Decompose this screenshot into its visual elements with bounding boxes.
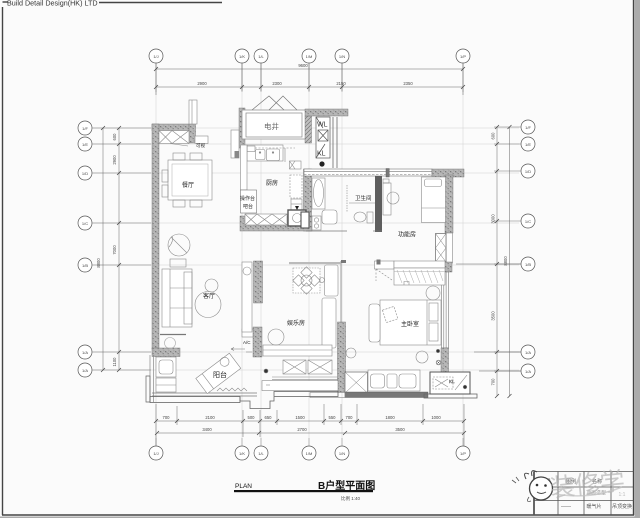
svg-text:KL: KL	[449, 379, 455, 384]
svg-text:3400: 3400	[202, 427, 212, 432]
svg-text:1/D: 1/D	[525, 169, 531, 174]
svg-text:2350: 2350	[403, 81, 413, 86]
svg-text:1/C: 1/C	[82, 221, 88, 226]
svg-text:吧台: 吧台	[243, 203, 253, 210]
svg-text:8800: 8800	[96, 258, 101, 268]
svg-text:3500: 3500	[491, 311, 496, 321]
svg-text:1/C: 1/C	[525, 219, 531, 224]
svg-text:1/D: 1/D	[82, 171, 88, 176]
svg-text:600: 600	[112, 133, 117, 141]
svg-text:7000: 7000	[112, 245, 117, 255]
svg-text:1/F: 1/F	[82, 126, 88, 131]
svg-text:1/J: 1/J	[153, 54, 158, 59]
svg-text:1/E: 1/E	[82, 142, 88, 147]
svg-text:客厅: 客厅	[203, 292, 215, 300]
svg-text:吊顶变换: 吊顶变换	[612, 503, 632, 510]
svg-text:1800: 1800	[385, 415, 395, 420]
svg-text:主卧室: 主卧室	[401, 320, 419, 328]
svg-text:1/A: 1/A	[525, 350, 531, 355]
svg-text:电井: 电井	[264, 121, 279, 131]
svg-text:卫生间: 卫生间	[355, 194, 372, 202]
svg-text:1/M: 1/M	[306, 451, 313, 456]
svg-text:500: 500	[248, 415, 256, 420]
svg-text:1/P: 1/P	[460, 54, 466, 59]
svg-text:——: ——	[561, 504, 571, 510]
svg-text:1/F: 1/F	[525, 125, 531, 130]
svg-text:1/A: 1/A	[525, 369, 531, 374]
svg-text:KL: KL	[317, 151, 326, 158]
svg-text:1/K: 1/K	[239, 54, 245, 59]
svg-text:2900: 2900	[197, 81, 207, 86]
svg-text:暖气片: 暖气片	[586, 503, 601, 510]
svg-text:1/J: 1/J	[153, 451, 158, 456]
svg-text:1/M: 1/M	[306, 54, 313, 59]
svg-text:650: 650	[265, 415, 273, 420]
svg-text:700: 700	[163, 415, 171, 420]
svg-text:PLAN: PLAN	[235, 483, 252, 490]
svg-text:2300: 2300	[272, 81, 282, 86]
svg-text:1/B: 1/B	[82, 263, 88, 268]
svg-text:WL: WL	[317, 122, 328, 129]
svg-text:1/P: 1/P	[460, 451, 466, 456]
svg-text:2900: 2900	[112, 155, 117, 165]
svg-text:1/N: 1/N	[339, 54, 345, 59]
svg-text:1500: 1500	[295, 415, 305, 420]
svg-text:1/L: 1/L	[258, 451, 264, 456]
svg-text:餐厅: 餐厅	[182, 181, 194, 189]
svg-text:700: 700	[346, 415, 354, 420]
svg-text:9600: 9600	[298, 63, 308, 68]
svg-text:娱乐房: 娱乐房	[287, 319, 305, 327]
svg-text:操作台: 操作台	[240, 195, 255, 202]
svg-text:可视: 可视	[196, 142, 205, 149]
svg-text:阳台: 阳台	[213, 370, 227, 379]
svg-text:700: 700	[491, 378, 496, 386]
svg-text:功能房: 功能房	[398, 231, 416, 239]
svg-text:1/B: 1/B	[525, 262, 531, 267]
svg-text:1/L: 1/L	[258, 54, 264, 59]
svg-text:1/A: 1/A	[82, 368, 88, 373]
svg-text:2150: 2150	[336, 81, 346, 86]
svg-text:8800: 8800	[503, 256, 508, 266]
svg-text:厨房: 厨房	[266, 179, 278, 187]
svg-text:A/C: A/C	[243, 340, 251, 345]
svg-text:1/N: 1/N	[339, 451, 345, 456]
svg-text:3500: 3500	[395, 427, 405, 432]
svg-text:Build Detail Design(HK) LTD: Build Detail Design(HK) LTD	[7, 0, 98, 8]
svg-text:1100: 1100	[112, 357, 117, 367]
svg-text:1/E: 1/E	[525, 142, 531, 147]
svg-text:1/A: 1/A	[82, 350, 88, 355]
svg-text:1000: 1000	[431, 415, 441, 420]
svg-text:550: 550	[329, 415, 337, 420]
svg-text:2700: 2700	[297, 427, 307, 432]
svg-text:3000: 3000	[491, 214, 496, 224]
svg-text:比例 1:40: 比例 1:40	[341, 495, 361, 502]
svg-text:1/K: 1/K	[239, 451, 245, 456]
svg-text:2100: 2100	[205, 415, 215, 420]
svg-text:600: 600	[491, 132, 496, 140]
